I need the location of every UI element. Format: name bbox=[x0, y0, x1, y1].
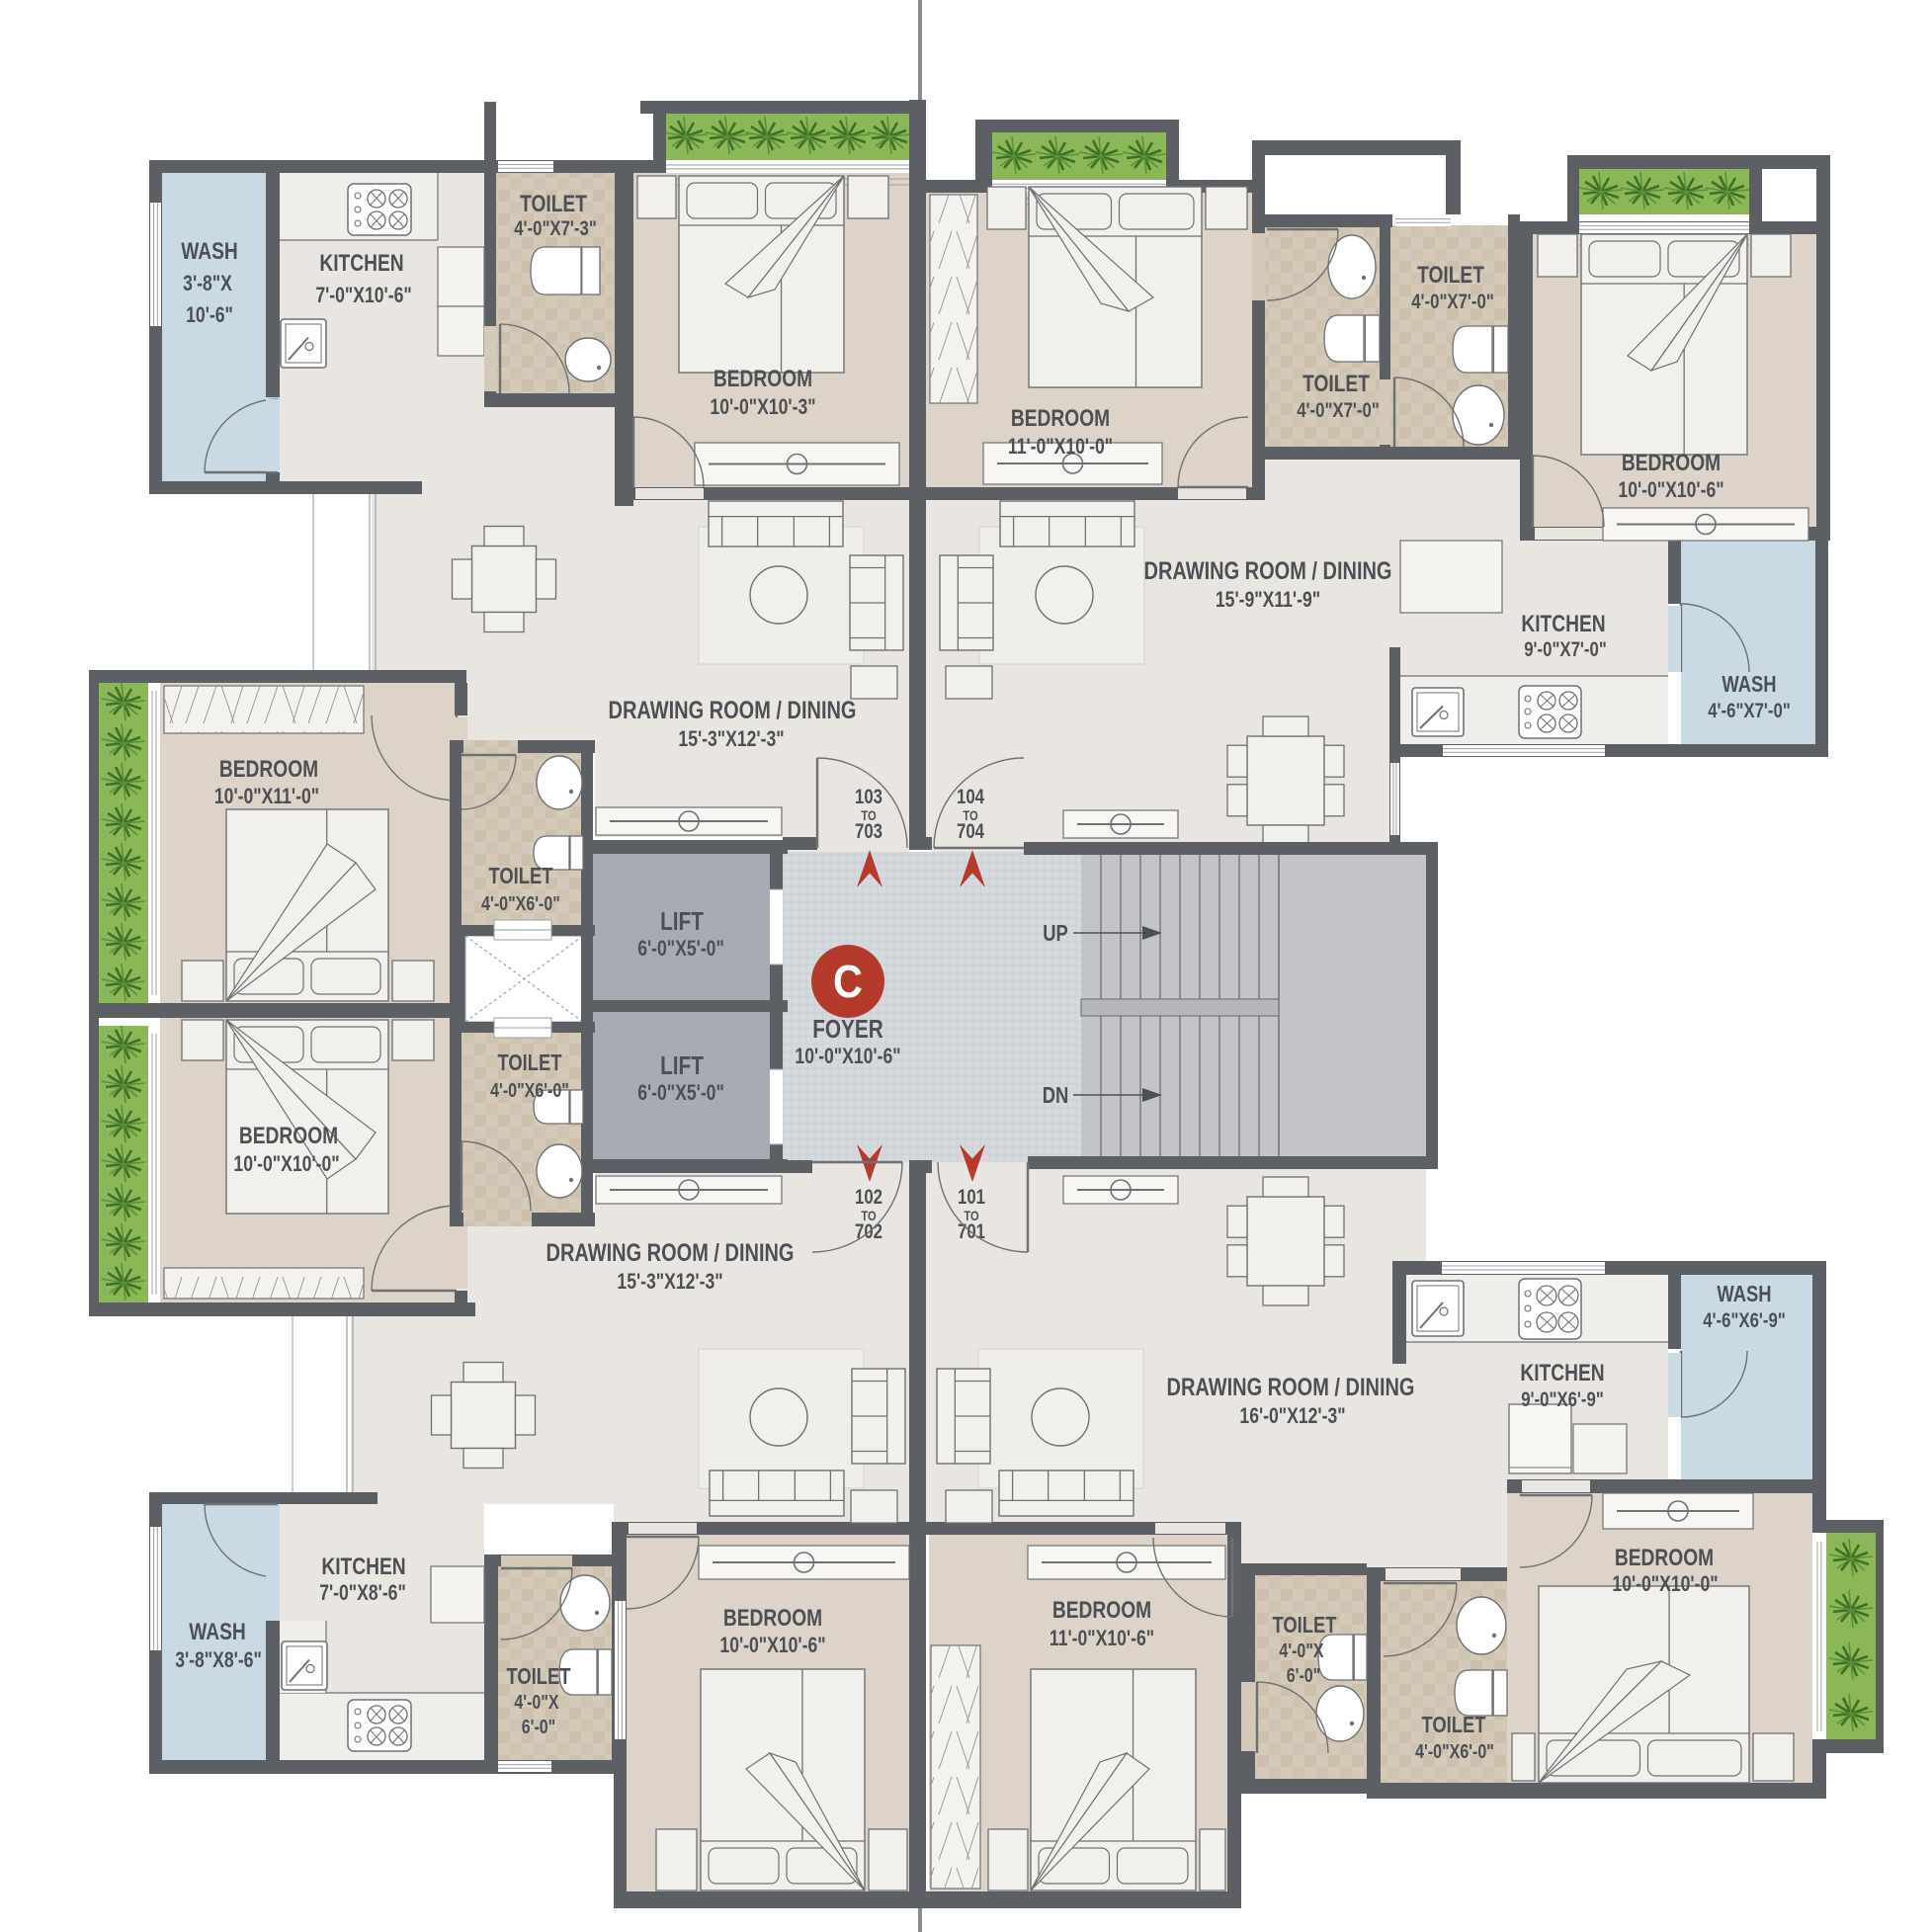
svg-text:4'-6"X7'-0": 4'-6"X7'-0" bbox=[1708, 700, 1791, 722]
svg-text:TOILET: TOILET bbox=[1272, 1613, 1336, 1638]
svg-text:7'-0"X8'-6": 7'-0"X8'-6" bbox=[319, 1581, 406, 1605]
svg-text:4'-0"X7'-0": 4'-0"X7'-0" bbox=[1411, 291, 1494, 313]
svg-text:15'-3"X12'-3": 15'-3"X12'-3" bbox=[678, 727, 784, 751]
svg-text:4'-0"X: 4'-0"X bbox=[514, 1691, 558, 1713]
svg-text:4'-0"X6'-0": 4'-0"X6'-0" bbox=[490, 1079, 569, 1101]
svg-text:TOILET: TOILET bbox=[520, 190, 588, 217]
svg-text:TOILET: TOILET bbox=[1421, 1713, 1485, 1737]
svg-text:10'-0"X10'-3": 10'-0"X10'-3" bbox=[710, 395, 815, 419]
svg-text:7'-0"X10'-6": 7'-0"X10'-6" bbox=[315, 284, 411, 307]
svg-text:704: 704 bbox=[957, 820, 984, 843]
svg-text:11'-0"X10'-6": 11'-0"X10'-6" bbox=[1050, 1627, 1154, 1650]
svg-text:4'-6"X6'-9": 4'-6"X6'-9" bbox=[1703, 1309, 1786, 1332]
svg-text:BEDROOM: BEDROOM bbox=[1615, 1544, 1714, 1571]
svg-text:4'-0"X6'-0": 4'-0"X6'-0" bbox=[481, 892, 560, 914]
svg-text:4'-0"X7'-0": 4'-0"X7'-0" bbox=[1297, 399, 1380, 422]
svg-text:BEDROOM: BEDROOM bbox=[723, 1604, 822, 1632]
svg-text:10'-0"X11'-0": 10'-0"X11'-0" bbox=[214, 785, 319, 808]
svg-text:WASH: WASH bbox=[1717, 1282, 1771, 1306]
svg-text:102: 102 bbox=[855, 1186, 882, 1209]
svg-text:6'-0"X5'-0": 6'-0"X5'-0" bbox=[637, 1081, 724, 1105]
svg-text:TOILET: TOILET bbox=[497, 1050, 561, 1075]
svg-text:15'-3"X12'-3": 15'-3"X12'-3" bbox=[617, 1270, 722, 1294]
svg-text:BEDROOM: BEDROOM bbox=[239, 1122, 338, 1149]
svg-text:TOILET: TOILET bbox=[506, 1664, 570, 1689]
svg-text:KITCHEN: KITCHEN bbox=[319, 249, 403, 277]
svg-text:WASH: WASH bbox=[1722, 672, 1776, 697]
svg-text:DRAWING ROOM / DINING: DRAWING ROOM / DINING bbox=[609, 697, 857, 724]
svg-text:BEDROOM: BEDROOM bbox=[714, 365, 812, 392]
svg-text:9'-0"X6'-9": 9'-0"X6'-9" bbox=[1521, 1388, 1604, 1411]
svg-text:104: 104 bbox=[957, 786, 984, 808]
svg-text:3'-8"X8'-6": 3'-8"X8'-6" bbox=[175, 1648, 262, 1672]
svg-text:LIFT: LIFT bbox=[660, 907, 704, 936]
svg-text:WASH: WASH bbox=[181, 237, 238, 265]
svg-text:LIFT: LIFT bbox=[660, 1051, 704, 1080]
svg-text:10'-6": 10'-6" bbox=[186, 303, 233, 327]
svg-text:DRAWING ROOM / DINING: DRAWING ROOM / DINING bbox=[546, 1239, 795, 1267]
svg-text:10'-0"X10'-6": 10'-0"X10'-6" bbox=[795, 1045, 900, 1068]
svg-text:16'-0"X12'-3": 16'-0"X12'-3" bbox=[1239, 1404, 1345, 1428]
svg-text:UP: UP bbox=[1043, 921, 1068, 946]
svg-text:BEDROOM: BEDROOM bbox=[1011, 404, 1110, 432]
svg-text:10'-0"X10'-6": 10'-0"X10'-6" bbox=[719, 1634, 825, 1657]
svg-text:BEDROOM: BEDROOM bbox=[1622, 449, 1721, 476]
svg-text:101: 101 bbox=[958, 1186, 985, 1209]
svg-text:4'-0"X: 4'-0"X bbox=[1279, 1639, 1323, 1661]
svg-text:4'-0"X7'-3": 4'-0"X7'-3" bbox=[514, 217, 597, 240]
svg-text:TOILET: TOILET bbox=[1417, 261, 1485, 289]
svg-text:C: C bbox=[833, 957, 863, 1008]
svg-text:DRAWING ROOM / DINING: DRAWING ROOM / DINING bbox=[1144, 557, 1392, 585]
svg-text:6'-0"X5'-0": 6'-0"X5'-0" bbox=[637, 937, 724, 961]
svg-text:DRAWING ROOM / DINING: DRAWING ROOM / DINING bbox=[1167, 1374, 1415, 1401]
svg-text:TOILET: TOILET bbox=[1302, 370, 1371, 397]
svg-text:10'-0"X10'-0": 10'-0"X10'-0" bbox=[233, 1152, 339, 1176]
svg-text:10'-0"X10'-6": 10'-0"X10'-6" bbox=[1618, 478, 1723, 502]
svg-text:11'-0"X10'-0": 11'-0"X10'-0" bbox=[1008, 435, 1113, 459]
svg-text:15'-9"X11'-9": 15'-9"X11'-9" bbox=[1216, 588, 1320, 612]
svg-text:WASH: WASH bbox=[189, 1618, 246, 1645]
svg-text:3'-8"X: 3'-8"X bbox=[183, 272, 232, 295]
svg-text:10'-0"X10'-0": 10'-0"X10'-0" bbox=[1612, 1572, 1718, 1596]
svg-text:103: 103 bbox=[855, 786, 882, 808]
svg-text:4'-0"X6'-0": 4'-0"X6'-0" bbox=[1415, 1740, 1494, 1762]
svg-text:BEDROOM: BEDROOM bbox=[219, 755, 318, 783]
svg-text:KITCHEN: KITCHEN bbox=[1520, 1359, 1604, 1386]
svg-text:KITCHEN: KITCHEN bbox=[1521, 610, 1605, 637]
svg-text:KITCHEN: KITCHEN bbox=[321, 1553, 405, 1580]
svg-text:6'-0": 6'-0" bbox=[522, 1716, 556, 1737]
svg-text:TOILET: TOILET bbox=[488, 864, 552, 888]
svg-text:9'-0"X7'-0": 9'-0"X7'-0" bbox=[1524, 638, 1607, 661]
svg-text:FOYER: FOYER bbox=[812, 1015, 883, 1044]
svg-text:6'-0": 6'-0" bbox=[1287, 1664, 1321, 1686]
svg-text:BEDROOM: BEDROOM bbox=[1052, 1596, 1151, 1624]
svg-text:703: 703 bbox=[855, 820, 882, 843]
svg-text:DN: DN bbox=[1043, 1083, 1069, 1108]
